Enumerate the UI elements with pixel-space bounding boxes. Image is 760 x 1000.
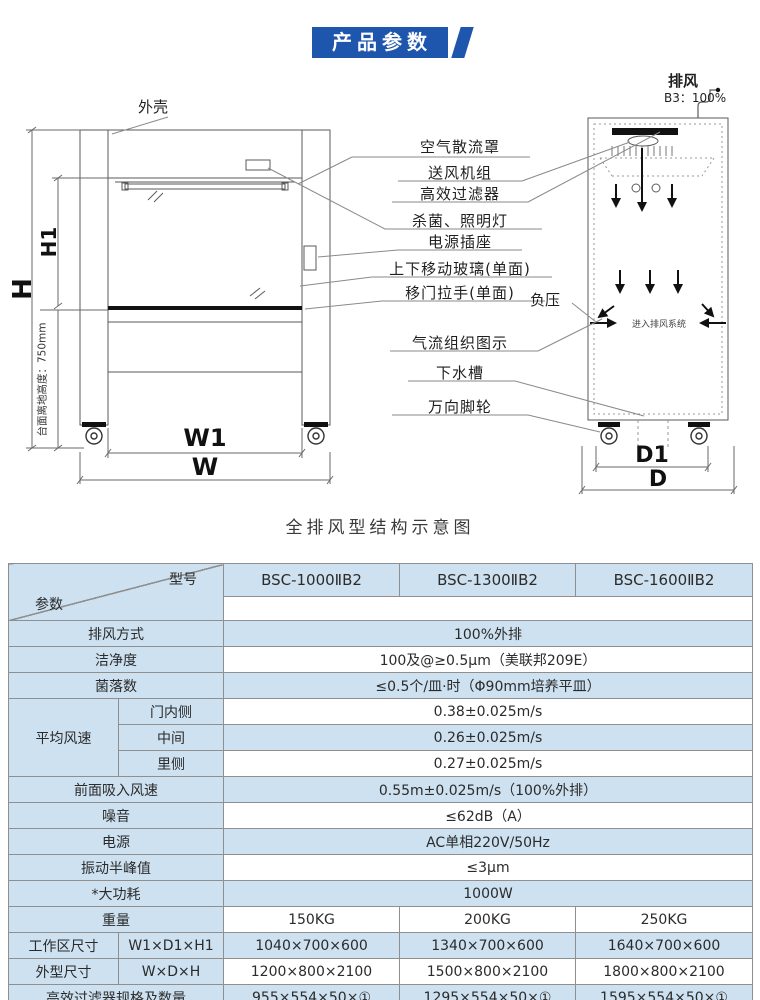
spec-value: 0.26±0.025m/s bbox=[224, 725, 753, 751]
table-row: 前面吸入风速 0.55m±0.025m/s（100%外排） bbox=[9, 777, 753, 803]
spec-value: 1000W bbox=[224, 881, 753, 907]
table-row: 噪音 ≤62dB（A） bbox=[9, 803, 753, 829]
spec-value: ≤3μm bbox=[224, 855, 753, 881]
spec-table: 型号 参数 BSC-1000ⅡB2 BSC-1300ⅡB2 BSC-1600ⅡB… bbox=[8, 563, 753, 1000]
spec-row-label: 噪音 bbox=[9, 803, 224, 829]
hepa-filter-bar bbox=[612, 128, 678, 135]
spec-row-label: 平均风速 bbox=[9, 699, 119, 777]
exhaust-label: 排风 bbox=[668, 70, 698, 91]
spec-row-label: 外型尺寸 bbox=[9, 959, 119, 985]
spec-sub-label: 里侧 bbox=[119, 751, 224, 777]
spec-value: 1200×800×2100 bbox=[224, 959, 400, 985]
table-row: 高效过滤器规格及数量 955×554×50×① 1295×554×50×① 15… bbox=[9, 985, 753, 1000]
section-title-badge: 产品参数 bbox=[312, 27, 448, 58]
spec-value: AC单相220V/50Hz bbox=[224, 829, 753, 855]
model-name: BSC-1300ⅡB2 bbox=[400, 564, 576, 597]
table-row: 重量 150KG 200KG 250KG bbox=[9, 907, 753, 933]
spec-row-label: 洁净度 bbox=[9, 647, 224, 673]
product-parameters-page: 产品参数 bbox=[0, 0, 760, 1000]
model-name: BSC-1600ⅡB2 bbox=[576, 564, 753, 597]
callout-hepa-filter: 高效过滤器 bbox=[340, 183, 580, 204]
callout-air-diffuser: 空气散流罩 bbox=[340, 136, 580, 157]
spec-value: 1800×800×2100 bbox=[576, 959, 753, 985]
spec-value: ≤0.5个/皿·时（Φ90mm培养平皿） bbox=[224, 673, 753, 699]
exhaust-ratio-label: B3：100% bbox=[664, 89, 726, 106]
callout-casters: 万向脚轮 bbox=[340, 396, 580, 417]
spec-value: 0.38±0.025m/s bbox=[224, 699, 753, 725]
callout-airflow-chart: 气流组织图示 bbox=[340, 332, 580, 353]
spacer-cell bbox=[224, 597, 753, 621]
side-view bbox=[588, 118, 728, 448]
corner-cell: 型号 参数 bbox=[9, 564, 224, 621]
table-header-row: 型号 参数 BSC-1000ⅡB2 BSC-1300ⅡB2 BSC-1600ⅡB… bbox=[9, 564, 753, 597]
spec-value: 0.27±0.025m/s bbox=[224, 751, 753, 777]
table-row: 排风方式 100%外排 bbox=[9, 621, 753, 647]
spec-value: 1500×800×2100 bbox=[400, 959, 576, 985]
spec-row-label: 高效过滤器规格及数量 bbox=[9, 985, 224, 1000]
table-row: 工作区尺寸 W1×D1×H1 1040×700×600 1340×700×600… bbox=[9, 933, 753, 959]
table-row: 振动半峰值 ≤3μm bbox=[9, 855, 753, 881]
spec-value: ≤62dB（A） bbox=[224, 803, 753, 829]
spec-value: 100及@≥0.5μm（美联邦209E） bbox=[224, 647, 753, 673]
spec-value: 250KG bbox=[576, 907, 753, 933]
table-row: 电源 AC单相220V/50Hz bbox=[9, 829, 753, 855]
shell-label: 外壳 bbox=[138, 96, 168, 117]
callout-sliding-glass: 上下移动玻璃(单面) bbox=[340, 258, 580, 279]
callout-drain-sink: 下水槽 bbox=[340, 362, 580, 383]
table-row: 菌落数 ≤0.5个/皿·时（Φ90mm培养平皿） bbox=[9, 673, 753, 699]
front-view bbox=[80, 130, 330, 425]
spec-value: 100%外排 bbox=[224, 621, 753, 647]
duct-note-label: 进入排风系统 bbox=[617, 317, 701, 330]
spec-value: 1040×700×600 bbox=[224, 933, 400, 959]
table-row: *大功耗 1000W bbox=[9, 881, 753, 907]
spec-value: 1295×554×50×① bbox=[400, 985, 576, 1000]
spec-value: 1595×554×50×① bbox=[576, 985, 753, 1000]
spec-value: 955×554×50×① bbox=[224, 985, 400, 1000]
callout-power-socket: 电源插座 bbox=[340, 231, 580, 252]
model-name: BSC-1000ⅡB2 bbox=[224, 564, 400, 597]
dim-w-label: W bbox=[175, 453, 235, 481]
spec-row-label: 菌落数 bbox=[9, 673, 224, 699]
table-row: 外型尺寸 W×D×H 1200×800×2100 1500×800×2100 1… bbox=[9, 959, 753, 985]
work-surface-edge bbox=[108, 306, 302, 310]
side-view-caster-wheels bbox=[601, 428, 707, 444]
table-row: 洁净度 100及@≥0.5μm（美联邦209E） bbox=[9, 647, 753, 673]
spec-sub-label: 门内侧 bbox=[119, 699, 224, 725]
dim-h-label: H bbox=[8, 274, 38, 304]
spec-row-label: 前面吸入风速 bbox=[9, 777, 224, 803]
dim-d-label: D bbox=[628, 467, 688, 492]
diagram-caption: 全排风型结构示意图 bbox=[0, 513, 760, 538]
dim-h1-label: H1 bbox=[37, 225, 61, 259]
structure-diagram: 外壳 排风 B3：100% 负压 进入排风系统 空气散流罩 送风机组 高效过滤器… bbox=[0, 60, 760, 560]
spec-row-label: 电源 bbox=[9, 829, 224, 855]
spec-value: 200KG bbox=[400, 907, 576, 933]
spec-value: 1340×700×600 bbox=[400, 933, 576, 959]
spec-row-label: 工作区尺寸 bbox=[9, 933, 119, 959]
dim-w1-label: W1 bbox=[175, 424, 235, 452]
callout-uv-lighting: 杀菌、照明灯 bbox=[340, 210, 580, 231]
spec-row-label: *大功耗 bbox=[9, 881, 224, 907]
corner-param-label: 参数 bbox=[35, 594, 63, 614]
table-row: 里侧 0.27±0.025m/s bbox=[9, 751, 753, 777]
dim-d1-label: D1 bbox=[622, 443, 682, 468]
spec-value: 0.55m±0.025m/s（100%外排） bbox=[224, 777, 753, 803]
spec-dims-label: W×D×H bbox=[119, 959, 224, 985]
corner-model-label: 型号 bbox=[169, 569, 197, 589]
airflow-arrows bbox=[590, 148, 726, 323]
callout-door-handle: 移门拉手(单面) bbox=[340, 282, 580, 303]
spec-value: 150KG bbox=[224, 907, 400, 933]
spec-value: 1640×700×600 bbox=[576, 933, 753, 959]
badge-slash-decoration bbox=[451, 27, 473, 58]
side-view-casters bbox=[598, 422, 710, 427]
spec-dims-label: W1×D1×H1 bbox=[119, 933, 224, 959]
table-row: 平均风速 门内侧 0.38±0.025m/s bbox=[9, 699, 753, 725]
spec-sub-label: 中间 bbox=[119, 725, 224, 751]
table-row: 中间 0.26±0.025m/s bbox=[9, 725, 753, 751]
callout-fan-unit: 送风机组 bbox=[340, 162, 580, 183]
counter-height-label: 台面离地高度：750mm bbox=[35, 300, 50, 460]
spec-row-label: 重量 bbox=[9, 907, 224, 933]
spec-row-label: 振动半峰值 bbox=[9, 855, 224, 881]
spec-row-label: 排风方式 bbox=[9, 621, 224, 647]
